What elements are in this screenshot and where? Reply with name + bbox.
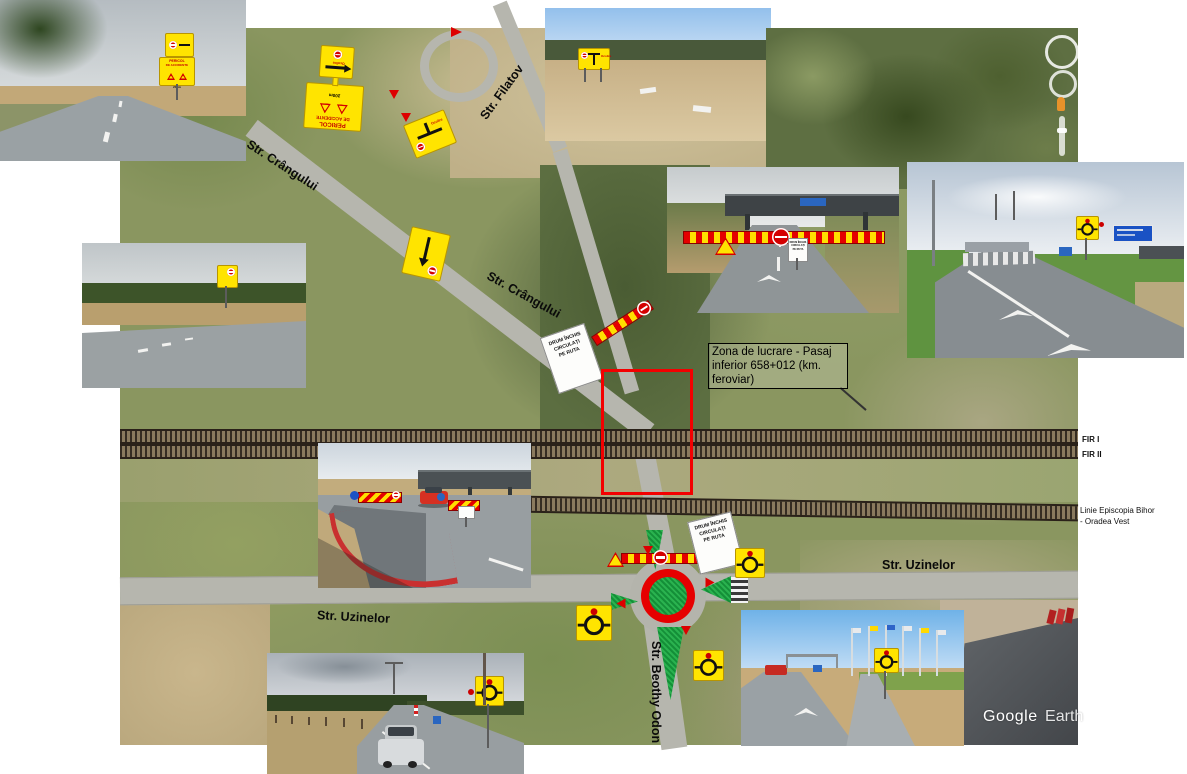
red-marker [468,689,474,695]
roundabout-sign [475,676,504,706]
accident-danger-sign: PERICOL DE ACCIDENTE 200m [303,82,364,132]
roundabout-sign [693,650,724,681]
no-entry-sign [227,268,235,276]
yield-marker [681,626,691,635]
blue-sign-small [1059,247,1072,256]
sign-post [884,671,886,699]
street-lamp [995,194,997,220]
junction-t-icon [588,53,600,55]
sign-post [600,68,602,82]
photo-field [82,303,306,325]
pedestrian-crossing [963,251,1035,267]
detour-arrow-head-icon [344,65,352,73]
watermark-google: Google [983,708,1038,725]
railway-label-line-2: - Oradea Vest [1080,517,1129,526]
street-photo-west-junction [82,243,306,388]
street-photo-underpass-barrier: DRUM ÎNCHIS CIRCULAȚI PE RUTA [667,167,899,313]
white-car-wheel [408,761,417,768]
railway-label-fir2: FIR II [1082,450,1102,459]
street-photo-dirt-junction: Ocolire [545,8,771,141]
sign-post [225,286,227,308]
flag-pole [919,628,921,676]
no-entry-sign [169,41,177,49]
no-entry-sign [415,141,427,153]
road-closure-barrier-roundabout [621,553,699,564]
sign-post [487,704,489,748]
sign-text: 200m [306,91,362,100]
railway-label-line-1: Linie Episcopia Bihor [1080,506,1155,515]
detour-arrow-icon [422,237,430,261]
accident-danger-sign: PERICOL DE ACCIDENTE 200m [159,57,195,86]
sign-text: Ocolire [431,117,444,125]
nav-look-ring[interactable] [1049,70,1077,98]
work-zone-rectangle [601,369,693,495]
bridge-pillar [745,214,750,230]
detour-arrow-icon [179,44,190,46]
roundabout-sign-icon [736,549,764,577]
photo-road [82,321,306,388]
street-label-uzinelor-east: Str. Uzinelor [882,558,955,572]
lane-marking [777,257,780,271]
roundabout-sign-icon [694,651,723,680]
blue-sign-small [433,716,441,724]
flag [887,625,895,630]
fence-post [325,717,327,726]
roundabout-sign [1076,216,1099,240]
no-entry-sign [333,50,343,60]
detour-direction-sign [165,33,194,57]
warning-triangle-icon [179,73,187,80]
warning-triangle-icon [336,104,348,115]
median-post [414,705,418,716]
yield-marker [401,113,411,122]
pegman-icon[interactable] [1057,97,1065,111]
street-photo-closed-lane-red-car [318,443,531,588]
flag [870,626,878,631]
aerial-strip-between-tracks [120,458,1078,502]
detour-direction-sign: Ocolire [319,45,355,79]
roundabout-sign [874,648,899,673]
blue-sign-small [813,665,822,672]
toll-gantry [786,654,838,657]
flag-pole [902,626,904,676]
photo-tree [0,0,130,95]
white-car-wheel [383,761,392,768]
info-sign [458,506,475,519]
fence-post [343,718,345,727]
sign-post [796,258,798,270]
street-label-beothy-odon: Str. Beothy Odon [649,641,663,743]
railway-track-fir1 [120,429,1078,444]
pedestrian-crossing [731,577,748,603]
roundabout-sign-icon [476,677,503,705]
street-lamp-arm [385,662,403,664]
photo-cloud-dark [277,653,427,687]
bridge-banner-sign [800,198,826,206]
flag [904,626,912,631]
nav-compass-ring[interactable] [1045,35,1078,69]
road-closure-barrier [683,231,885,244]
sign-text: PE RUTA [789,248,807,251]
utility-pole [932,180,935,266]
detour-junction-sign: Ocolire [578,48,610,70]
street-photo-south-approach-white-car [267,653,524,774]
no-entry-sign [392,491,400,499]
photo-ground [545,60,771,141]
traffic-plan-canvas: PERICOL DE ACCIDENTE 200m Ocolire Ocolir… [0,0,1187,774]
street-lamp [393,662,395,694]
red-arrow-marker [451,27,462,37]
fence-post [308,717,310,725]
roundabout-center-island [649,577,687,615]
no-entry-panel-sign [217,265,238,288]
photo-cloud [937,172,1137,222]
sign-text-line [1117,234,1135,236]
blue-mandatory-sign [350,491,359,500]
yield-marker [617,599,626,609]
no-entry-sign [581,52,588,59]
roundabout-sign-icon [875,649,898,672]
watermark-earth: Earth [1045,708,1083,725]
gantry-leg [836,654,838,668]
zoom-slider[interactable] [1059,116,1065,156]
sign-post [1085,238,1087,260]
fence-post [275,715,277,723]
blue-direction-sign [1113,225,1153,242]
railway-bridge-distant [1139,246,1184,259]
roundabout-sign-icon [577,606,611,640]
sign-text-line [1117,229,1143,231]
work-zone-annotation: Zona de lucrare - Pasaj inferior 658+012… [708,343,848,389]
roundabout-sign [576,605,612,641]
sign-text: DE ACCIDENTE [160,63,194,67]
fence-post [361,719,363,729]
yield-marker [706,578,715,588]
flag-pole [868,626,870,676]
roundabout-sign-icon [1077,217,1098,239]
railway-track-fir2 [120,444,1078,459]
street-photo-crangului-approach: PERICOL DE ACCIDENTE 200m [0,0,246,161]
truck [1065,608,1074,624]
warning-triangle-icon [319,103,331,114]
sign-text: Ocolire [601,54,611,58]
yield-marker [389,90,399,99]
flag-pole [851,628,853,676]
flag [853,628,861,633]
zoom-slider-knob[interactable] [1057,128,1067,133]
bridge-pillar [863,212,868,230]
fence-post [291,716,293,724]
white-car-windshield [388,727,414,736]
utility-pole [483,653,486,705]
flag [938,630,946,635]
roundabout-sign [735,548,765,578]
parked-trucks [1048,608,1076,628]
flag [921,628,929,633]
detour-arrow-head-icon [417,258,429,268]
distant-buildings [965,242,1029,252]
warning-triangle-icon [167,73,175,80]
red-car [765,665,787,675]
road-closed-text-sign: DRUM ÎNCHIS CIRCULAȚI PE RUTA [788,238,808,262]
sign-post [176,84,178,100]
red-marker [1099,222,1104,227]
sign-post [465,517,467,527]
blue-mandatory-sign [437,493,445,501]
road-loop [420,30,498,102]
aerial-dirt-patch-bottom-left [120,600,270,745]
railway-label-fir1: FIR I [1082,435,1099,444]
sign-post [584,68,586,82]
yield-marker [643,546,653,555]
flag-pole [936,630,938,676]
street-lamp [1013,191,1015,220]
sign-text: Ocolire [333,61,345,66]
no-entry-sign [426,265,438,277]
pericol-sign-group: PERICOL DE ACCIDENTE 200m Ocolire [303,44,367,132]
gantry-leg [786,654,788,668]
street-photo-east-roundabout-approach [907,162,1184,358]
no-entry-sign [653,550,668,565]
google-earth-watermark: Google Earth [983,708,1083,726]
street-photo-uzinelor-flags [741,610,964,746]
